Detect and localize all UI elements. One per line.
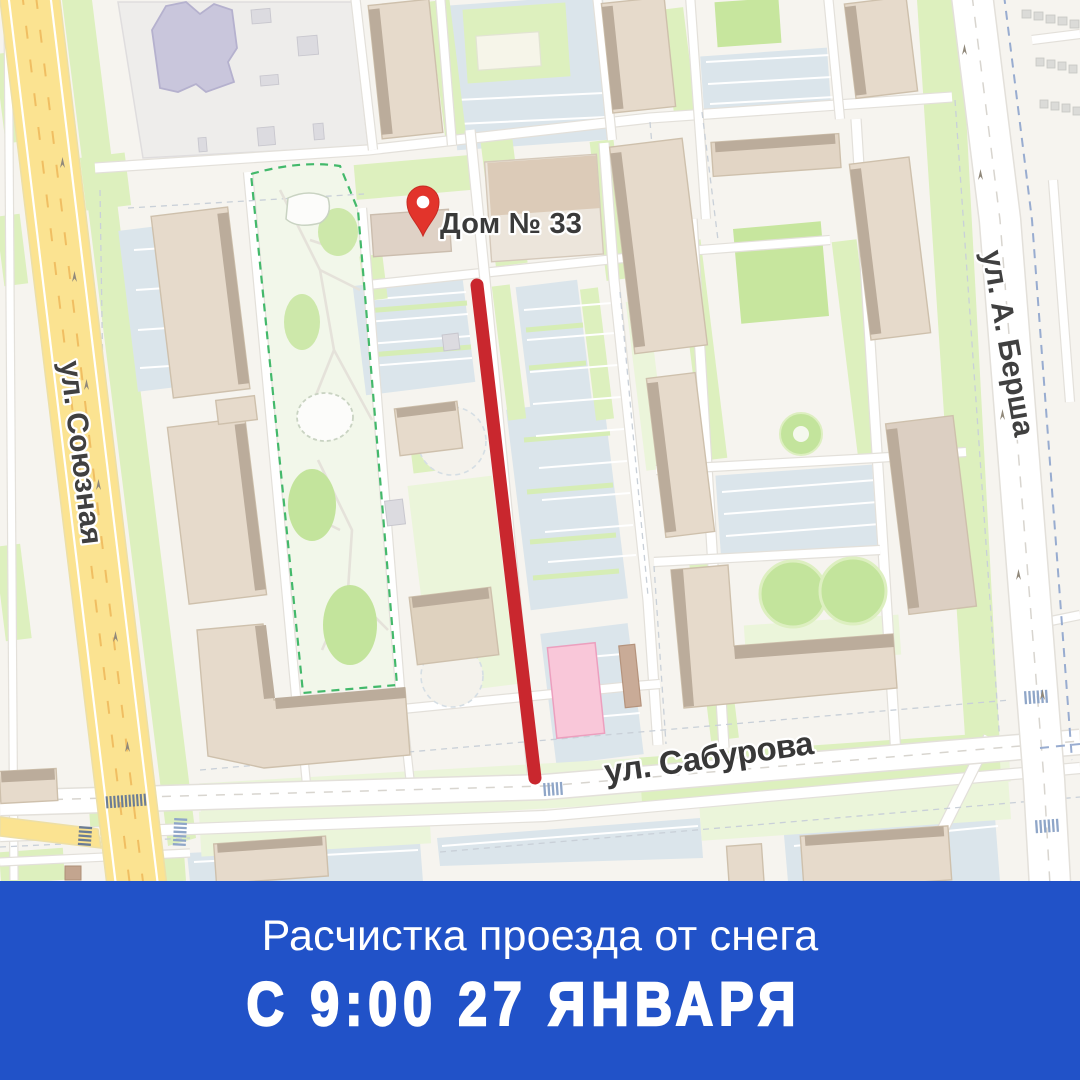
- svg-text:Дом № 33: Дом № 33: [440, 208, 582, 240]
